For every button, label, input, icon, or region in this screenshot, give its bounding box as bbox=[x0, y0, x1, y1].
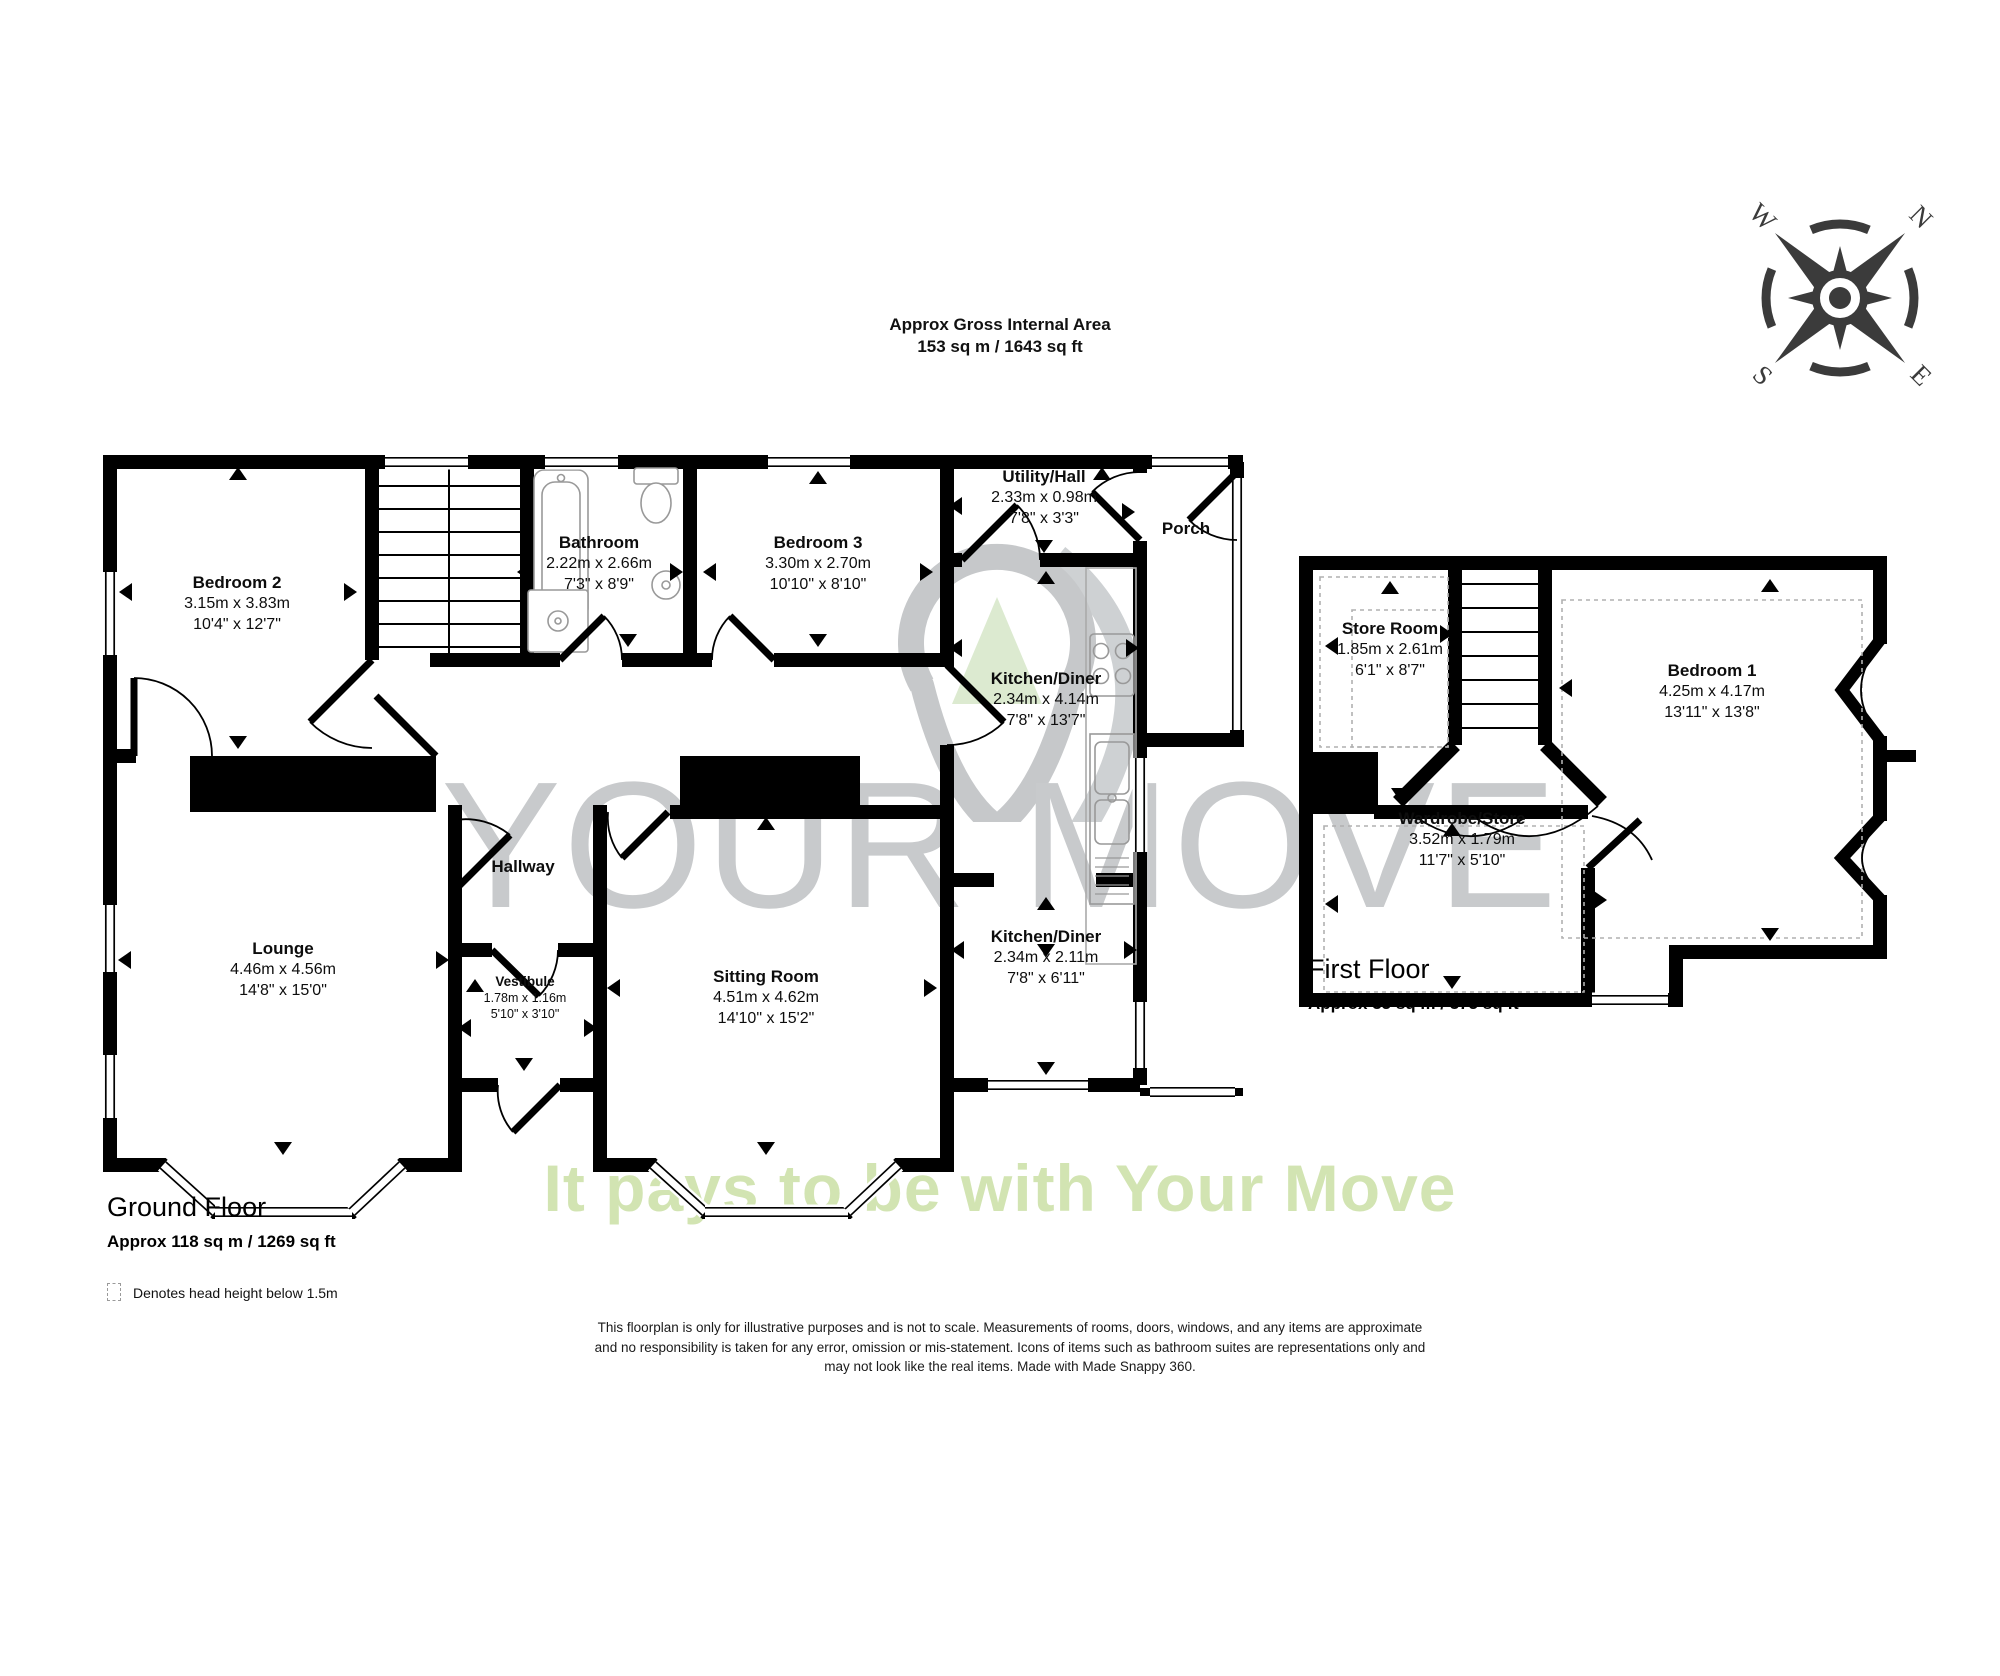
room-label-bedroom-2: Bedroom 23.15m x 3.83m10'4" x 12'7" bbox=[184, 572, 290, 635]
first-floor-title: First Floor bbox=[1308, 954, 1430, 985]
room-label-store-room: Store Room1.85m x 2.61m6'1" x 8'7" bbox=[1337, 618, 1443, 681]
room-label-kitchen-diner-upper: Kitchen/Diner2.34m x 4.14m7'8" x 13'7" bbox=[991, 668, 1102, 731]
staircase-first bbox=[1462, 584, 1538, 728]
room-label-bathroom: Bathroom2.22m x 2.66m7'3" x 8'9" bbox=[546, 532, 652, 595]
floorplan-page: YOUR MOVE It pays to be with Your Move bbox=[0, 0, 2000, 1676]
room-label-utility-hall: Utility/Hall2.33m x 0.98m7'8" x 3'3" bbox=[991, 466, 1097, 529]
room-label-porch: Porch bbox=[1162, 518, 1210, 539]
room-label-hallway: Hallway bbox=[491, 856, 554, 877]
legend: Denotes head height below 1.5m bbox=[107, 1283, 338, 1301]
ground-floor-title: Ground Floor bbox=[107, 1192, 266, 1223]
chimney-block bbox=[1306, 752, 1378, 814]
head-height-icon bbox=[107, 1283, 121, 1301]
gia-value: 153 sq m / 1643 sq ft bbox=[0, 336, 2000, 358]
staircase-ground bbox=[379, 462, 520, 656]
first-floor-area: Approx 35 sq m / 375 sq ft bbox=[1308, 994, 1519, 1014]
room-label-lounge: Lounge4.46m x 4.56m14'8" x 15'0" bbox=[230, 938, 336, 1001]
compass-east-label: E bbox=[1905, 359, 1938, 392]
legend-label: Denotes head height below 1.5m bbox=[133, 1285, 338, 1301]
chimney-block bbox=[680, 756, 860, 812]
compass-west-label: W bbox=[1743, 197, 1783, 237]
ground-floor-area: Approx 118 sq m / 1269 sq ft bbox=[107, 1232, 336, 1252]
compass-south-label: S bbox=[1747, 359, 1779, 391]
chimney-block bbox=[190, 756, 436, 812]
room-label-sitting-room: Sitting Room4.51m x 4.62m14'10" x 15'2" bbox=[713, 966, 819, 1029]
compass-icon: N E S W bbox=[1664, 118, 2000, 471]
gross-internal-area: Approx Gross Internal Area 153 sq m / 16… bbox=[0, 314, 2000, 358]
room-label-kitchen-diner-lower: Kitchen/Diner2.34m x 2.11m7'8" x 6'11" bbox=[991, 926, 1102, 989]
room-label-vestibule: Vestibule1.78m x 1.16m5'10" x 3'10" bbox=[484, 974, 567, 1022]
compass-north-label: N bbox=[1904, 199, 1939, 234]
floorplan-drawing: N E S W bbox=[0, 0, 2000, 1676]
disclaimer: This floorplan is only for illustrative … bbox=[400, 1318, 1620, 1377]
room-label-bedroom-3: Bedroom 33.30m x 2.70m10'10" x 8'10" bbox=[765, 532, 871, 595]
room-label-wardrobe-store: Wardrobe/Store3.52m x 1.79m11'7" x 5'10" bbox=[1399, 808, 1526, 871]
gia-title: Approx Gross Internal Area bbox=[0, 314, 2000, 336]
room-label-bedroom-1: Bedroom 14.25m x 4.17m13'11" x 13'8" bbox=[1659, 660, 1765, 723]
